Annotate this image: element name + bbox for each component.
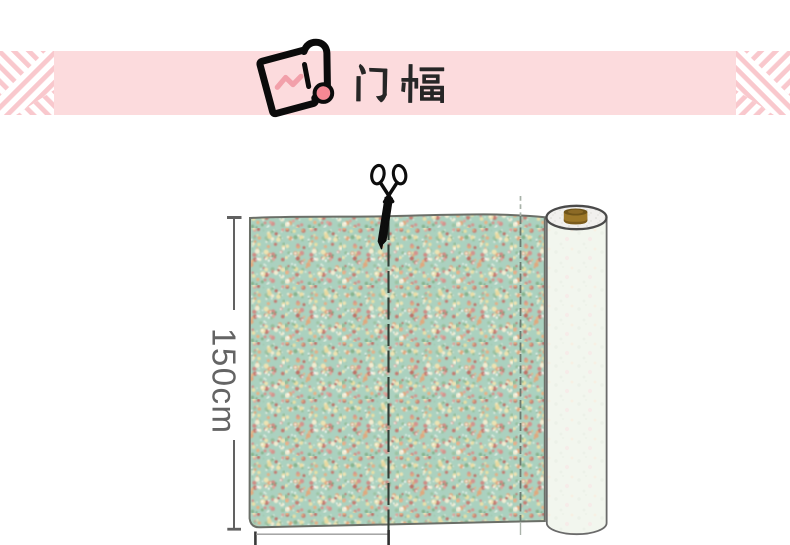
svg-text:150cm: 150cm	[206, 328, 243, 435]
